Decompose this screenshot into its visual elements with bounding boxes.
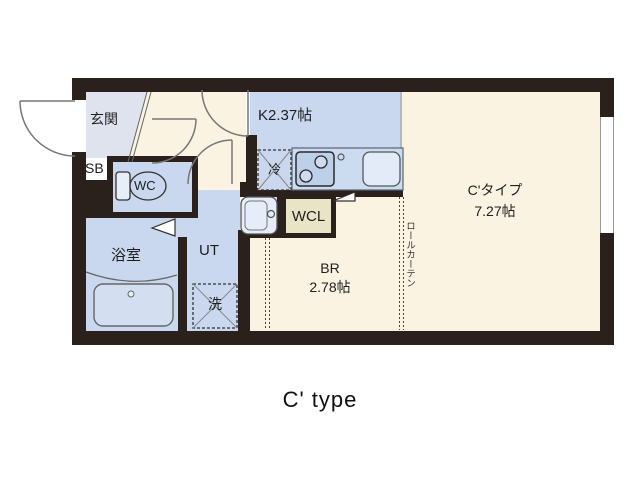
bedroom-label: BR 2.78帖 [270, 259, 390, 297]
floorplan-page: WCL [0, 0, 640, 480]
bathroom-label: 浴室 [111, 244, 141, 265]
entrance-door-icon [20, 101, 75, 156]
wall-top [72, 78, 614, 92]
walkin-closet: WCL [281, 194, 336, 238]
kitchen-label: K2.37帖 [258, 104, 312, 125]
window [600, 117, 614, 233]
wall-hall-stub [240, 182, 257, 197]
closet-label: WCL [292, 208, 325, 225]
plan-caption: C' type [0, 387, 640, 413]
utility-label: UT [199, 242, 219, 259]
wall-bath-utility [178, 237, 187, 331]
fridge-label: 冷 [258, 159, 291, 178]
main-room-size: 7.27帖 [430, 201, 560, 222]
wall-bottom [72, 331, 614, 345]
entrance-label: 玄関 [90, 109, 118, 129]
main-room-label: C'タイプ 7.27帖 [430, 180, 560, 222]
bathroom-floor [86, 218, 187, 331]
washer-label: 洗 [193, 294, 237, 314]
closet-passage-floor [336, 197, 400, 238]
main-room-name: C'タイプ [430, 180, 560, 201]
bedroom-size: 2.78帖 [270, 278, 390, 297]
entrance-door-opening [72, 100, 86, 152]
shoebox-label: SB [85, 160, 104, 176]
roll-curtain-label: ロールカーテン [402, 221, 416, 288]
toilet-label: WC [134, 178, 156, 193]
wall-utility-bedroom [238, 230, 250, 331]
bedroom-name: BR [270, 259, 390, 278]
